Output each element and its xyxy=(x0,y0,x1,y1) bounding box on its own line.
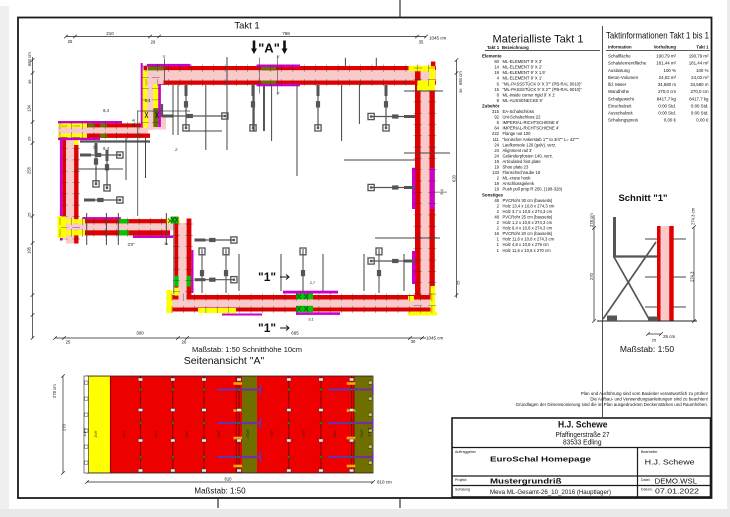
svg-text:190,79 m²: 190,79 m² xyxy=(689,54,709,59)
svg-text:Datei:: Datei: xyxy=(641,478,650,482)
svg-text:0:00 Std.: 0:00 Std. xyxy=(658,103,676,108)
svg-text:Datum:: Datum: xyxy=(641,488,653,492)
svg-text:270: 270 xyxy=(62,423,67,431)
svg-text:IMPERIAL-RICHTSCHIENE 4': IMPERIAL-RICHTSCHIENE 4' xyxy=(503,126,560,131)
svg-text:255: 255 xyxy=(27,166,32,174)
svg-text:83533 Edling: 83533 Edling xyxy=(563,438,602,447)
svg-text:Takt 1: Takt 1 xyxy=(696,44,709,49)
svg-text:620: 620 xyxy=(452,174,457,182)
svg-text:19: 19 xyxy=(494,165,499,170)
svg-text:Bezeichnung: Bezeichnung xyxy=(502,45,529,50)
svg-text:H.J. Schewe: H.J. Schewe xyxy=(645,460,695,467)
svg-text:2'x9': 2'x9' xyxy=(94,430,98,437)
svg-text:ML-crane hook: ML-crane hook xyxy=(503,176,532,181)
svg-text:Geländerpfosten 140, verz.: Geländerpfosten 140, verz. xyxy=(503,153,554,158)
svg-text:11,6: 11,6 xyxy=(131,118,136,127)
svg-text:Beton-Volumen: Beton-Volumen xyxy=(608,75,639,80)
svg-text:Vorhaltung: Vorhaltung xyxy=(654,44,677,49)
svg-text:"konischer Ankerstab 1"" to 3/: "konischer Ankerstab 1"" to 3/4"" L= 42"… xyxy=(503,137,580,142)
svg-text:684 cm: 684 cm xyxy=(27,52,32,66)
svg-text:Anschlussgelenk: Anschlussgelenk xyxy=(503,181,535,186)
svg-text:19: 19 xyxy=(494,70,499,75)
svg-text:222: 222 xyxy=(492,131,500,136)
svg-text:1x: 1x xyxy=(164,242,168,246)
svg-text:ML-ELEMENT 9' X 3': ML-ELEMENT 9' X 3' xyxy=(503,59,543,64)
svg-text:768: 768 xyxy=(282,31,290,36)
svg-text:PVCRohr 30 cm (bauseits): PVCRohr 30 cm (bauseits) xyxy=(503,198,553,203)
svg-text:3'3": 3'3" xyxy=(128,242,135,247)
svg-text:Elemente: Elemente xyxy=(482,54,502,59)
svg-text:Meva ML-Gesamt-26_10_2016 (Hau: Meva ML-Gesamt-26_10_2016 (Hauptlager) xyxy=(490,489,611,496)
svg-text:Bearbeiter: Bearbeiter xyxy=(641,450,658,454)
svg-text:26: 26 xyxy=(182,340,187,345)
svg-text:3': 3' xyxy=(277,54,280,59)
svg-text:A.E 9': A.E 9' xyxy=(83,427,87,436)
svg-text:24,02 m³: 24,02 m³ xyxy=(691,75,709,80)
svg-text:3'x9': 3'x9' xyxy=(185,430,189,437)
svg-text:Articulated foot plate: Articulated foot plate xyxy=(503,159,542,164)
svg-text:1'5'x9': 1'5'x9' xyxy=(360,429,364,439)
svg-text:8417,7 kg: 8417,7 kg xyxy=(689,96,709,101)
svg-text:Plan und Ausführung sind vom B: Plan und Ausführung sind vom Bauleiter v… xyxy=(581,391,708,396)
svg-text:30: 30 xyxy=(411,339,416,344)
svg-text:Holz 1,2 x 10,8 x 274,3 cm: Holz 1,2 x 10,8 x 274,3 cm xyxy=(503,220,553,225)
svg-text:Schalungspreis: Schalungspreis xyxy=(608,118,639,123)
svg-text:H.J. Schewe: H.J. Schewe xyxy=(558,420,608,431)
svg-text:Taktinformationen Takt 1 bis: Taktinformationen Takt 1 bis 1 xyxy=(606,31,709,41)
svg-text:"ML-PASSSTÜCK 9' X 3"" (PB-RA: "ML-PASSSTÜCK 9' X 3"" (PB-RAL 9010)" xyxy=(503,81,583,86)
svg-text:24: 24 xyxy=(494,153,499,158)
svg-text:Zubehör: Zubehör xyxy=(482,103,500,108)
svg-text:35: 35 xyxy=(419,40,424,45)
svg-text:Mustergrundriß: Mustergrundriß xyxy=(490,478,562,485)
svg-text:19: 19 xyxy=(494,181,499,186)
svg-text:6,4: 6,4 xyxy=(145,98,151,103)
svg-text:Holz 13,4 x 10,8 x 274,3 cm: Holz 13,4 x 10,8 x 274,3 cm xyxy=(503,203,555,208)
svg-text:Alignment rail 3': Alignment rail 3' xyxy=(503,148,533,153)
svg-text:Die Aufbau- und Verwendungsanl: Die Aufbau- und Verwendungsanleitungen s… xyxy=(590,397,708,402)
svg-text:48: 48 xyxy=(494,198,499,203)
svg-text:5,4: 5,4 xyxy=(439,188,444,194)
svg-text:1'5'x9': 1'5'x9' xyxy=(246,429,250,439)
svg-text:ML-ELEMENT 9' X 1.5': ML-ELEMENT 9' X 1.5' xyxy=(503,70,546,75)
svg-text:Maßstab: 1:50 Schnitthöhe 10: Maßstab: 1:50 Schnitthöhe 10cm xyxy=(192,345,302,354)
svg-text:270: 270 xyxy=(589,272,594,280)
svg-text:2': 2' xyxy=(175,147,178,152)
svg-text:60: 60 xyxy=(494,59,499,64)
svg-text:2,7: 2,7 xyxy=(310,281,315,285)
svg-text:Shoe plate 23: Shoe plate 23 xyxy=(503,165,530,170)
svg-text:181,44 m²: 181,44 m² xyxy=(689,61,709,66)
svg-text:Flanschschraube 18: Flanschschraube 18 xyxy=(503,170,541,175)
svg-text:"1": "1" xyxy=(258,270,276,284)
svg-text:Schalelementfläche: Schalelementfläche xyxy=(608,61,647,66)
svg-text:19: 19 xyxy=(494,187,499,192)
svg-text:Seitenansicht "A": Seitenansicht "A" xyxy=(184,355,265,367)
svg-text:3'x9': 3'x9' xyxy=(122,430,126,437)
svg-text:300: 300 xyxy=(136,331,144,336)
svg-text:190,79 m²: 190,79 m² xyxy=(656,54,676,59)
svg-text:Schalfläche: Schalfläche xyxy=(608,54,631,59)
svg-text:IMPERIAL-RICHTSCHIENE 6': IMPERIAL-RICHTSCHIENE 6' xyxy=(503,120,560,125)
svg-text:8417,7 kg: 8417,7 kg xyxy=(657,96,677,101)
svg-text:ML-AUSSENECKE 9': ML-AUSSENECKE 9' xyxy=(503,98,543,103)
svg-text:Maßstab: 1:50: Maßstab: 1:50 xyxy=(620,344,675,354)
svg-text:810: 810 xyxy=(225,477,233,482)
svg-text:07.01.2022: 07.01.2022 xyxy=(655,489,699,496)
svg-text:Projekt:: Projekt: xyxy=(455,478,467,482)
svg-text:EA-Schalschloss: EA-Schalschloss xyxy=(503,109,534,114)
svg-text:29: 29 xyxy=(27,136,32,141)
svg-text:278 cm: 278 cm xyxy=(589,213,594,227)
svg-text:ML-ELEMENT 9' X 1': ML-ELEMENT 9' X 1' xyxy=(503,76,543,81)
svg-text:3'x9': 3'x9' xyxy=(333,430,337,437)
svg-text:100 %: 100 % xyxy=(664,68,677,73)
svg-text:Materialliste Takt 1: Materialliste Takt 1 xyxy=(493,34,584,46)
svg-text:"1": "1" xyxy=(258,321,276,335)
svg-text:25: 25 xyxy=(652,338,657,343)
svg-text:210: 210 xyxy=(106,31,114,36)
svg-text:Holz 11,6 x 10,8 x 270 cm: Holz 11,6 x 10,8 x 270 cm xyxy=(503,248,552,253)
svg-text:Maßstab: 1:50: Maßstab: 1:50 xyxy=(194,487,246,496)
svg-text:Schalung: Schalung xyxy=(455,488,470,492)
svg-text:274,3: 274,3 xyxy=(690,271,695,282)
svg-text:Takt 1: Takt 1 xyxy=(487,45,500,50)
svg-text:24,02 m³: 24,02 m³ xyxy=(659,75,677,80)
svg-text:48: 48 xyxy=(494,214,499,219)
svg-text:25: 25 xyxy=(66,340,71,345)
svg-text:195: 195 xyxy=(27,246,32,254)
svg-text:Ausschalzeit: Ausschalzeit xyxy=(608,111,633,116)
svg-text:0:00 Std.: 0:00 Std. xyxy=(691,103,709,108)
svg-text:684 cm: 684 cm xyxy=(458,71,463,85)
svg-text:Holz 4,8 x 10,8 x 279 cm: Holz 4,8 x 10,8 x 279 cm xyxy=(503,242,550,247)
svg-text:Information: Information xyxy=(608,44,632,49)
svg-text:ML-inside corner rigid 9' X 1': ML-inside corner rigid 9' X 1' xyxy=(503,92,556,97)
svg-text:"ML-PASSSTÜCK 9' X 2"" (PB-RA: "ML-PASSSTÜCK 9' X 2"" (PB-RAL 9010)" xyxy=(503,87,583,92)
svg-text:3,1: 3,1 xyxy=(308,318,313,322)
svg-text:134: 134 xyxy=(27,104,32,112)
svg-text:315: 315 xyxy=(492,109,500,114)
svg-text:Auftraggeber: Auftraggeber xyxy=(455,450,477,454)
svg-text:PVCRohr 20 cm (bauseits): PVCRohr 20 cm (bauseits) xyxy=(503,231,553,236)
svg-text:Sonstiges: Sonstiges xyxy=(482,192,504,197)
svg-text:ML-ELEMENT 9' X 2': ML-ELEMENT 9' X 2' xyxy=(503,65,543,70)
svg-text:A.E 9': A.E 9' xyxy=(368,427,372,436)
svg-text:Holz 11,6 x 10,8 x 274,3 cm: Holz 11,6 x 10,8 x 274,3 cm xyxy=(503,237,555,242)
svg-text:25: 25 xyxy=(27,212,32,217)
svg-text:PVCRohr 25 cm (bauseits): PVCRohr 25 cm (bauseits) xyxy=(503,214,553,219)
svg-text:100 %: 100 % xyxy=(696,68,709,73)
svg-text:Grundlagen der Dimensionierung: Grundlagen der Dimensionierung sind die … xyxy=(516,402,708,407)
svg-text:36: 36 xyxy=(458,88,463,93)
svg-text:Uni-Schalschloss 22: Uni-Schalschloss 22 xyxy=(503,115,542,120)
svg-text:274,3 cm: 274,3 cm xyxy=(691,207,696,225)
svg-text:25 cm: 25 cm xyxy=(663,334,676,339)
svg-text:665: 665 xyxy=(291,331,299,336)
svg-text:Flange nut 100: Flange nut 100 xyxy=(503,131,532,136)
svg-text:Takt 1: Takt 1 xyxy=(234,21,259,32)
svg-text:3'x9': 3'x9' xyxy=(270,430,274,437)
svg-text:3'x9': 3'x9' xyxy=(302,430,306,437)
svg-text:Holz 3,7 x 10,8 x 274,3 cm: Holz 3,7 x 10,8 x 274,3 cm xyxy=(503,209,553,214)
svg-text:Wandhöhe: Wandhöhe xyxy=(608,89,630,94)
svg-text:25: 25 xyxy=(68,39,73,44)
svg-text:1045 cm: 1045 cm xyxy=(426,336,444,341)
svg-text:278 cm: 278 cm xyxy=(52,384,57,398)
svg-text:DEMO.WSL: DEMO.WSL xyxy=(655,478,698,485)
svg-text:29: 29 xyxy=(151,40,156,45)
svg-text:92: 92 xyxy=(494,115,499,120)
svg-text:0,00 €: 0,00 € xyxy=(664,118,677,123)
svg-text:34,580 m: 34,580 m xyxy=(658,82,677,87)
svg-text:25: 25 xyxy=(456,280,461,285)
svg-text:Holz 6,4 x 10,8 x 274,3 cm: Holz 6,4 x 10,8 x 274,3 cm xyxy=(503,226,553,231)
svg-text:3': 3' xyxy=(163,54,166,59)
svg-text:14: 14 xyxy=(494,65,499,70)
svg-text:181,44 m²: 181,44 m² xyxy=(656,61,676,66)
svg-text:Einschalzeit: Einschalzeit xyxy=(608,103,632,108)
svg-text:111: 111 xyxy=(493,137,500,142)
svg-text:Schalgewicht: Schalgewicht xyxy=(608,96,635,101)
svg-text:Laufkonsole 126 (galv), verz.: Laufkonsole 126 (galv), verz. xyxy=(503,142,557,147)
svg-text:16: 16 xyxy=(494,231,499,236)
svg-text:EuroSchal Homepage: EuroSchal Homepage xyxy=(490,457,591,464)
svg-text:0,00 €: 0,00 € xyxy=(696,118,709,123)
svg-text:0:00 Std.: 0:00 Std. xyxy=(691,111,709,116)
svg-text:2': 2' xyxy=(93,145,96,150)
svg-text:0:00 Std.: 0:00 Std. xyxy=(658,111,676,116)
svg-text:lfd. Meter: lfd. Meter xyxy=(608,82,627,87)
svg-text:3': 3' xyxy=(277,91,280,96)
svg-text:Schnitt "1": Schnitt "1" xyxy=(618,193,667,204)
svg-text:133: 133 xyxy=(492,170,500,175)
svg-text:36: 36 xyxy=(27,79,32,84)
svg-text:270,0 cm: 270,0 cm xyxy=(658,89,676,94)
svg-text:Auslastung: Auslastung xyxy=(608,68,630,73)
svg-text:24: 24 xyxy=(494,142,499,147)
svg-text:24: 24 xyxy=(494,148,499,153)
svg-text:810 cm: 810 cm xyxy=(377,480,392,485)
svg-text:6,4: 6,4 xyxy=(103,146,109,151)
svg-text:19: 19 xyxy=(494,159,499,164)
svg-text:64: 64 xyxy=(494,126,499,131)
svg-text:6,4: 6,4 xyxy=(103,108,109,113)
svg-text:Push pull prop R 250, (198-328: Push pull prop R 250, (198-328) xyxy=(503,187,563,192)
svg-text:15: 15 xyxy=(494,87,499,92)
svg-text:3'x9': 3'x9' xyxy=(217,430,221,437)
svg-text:270,0 cm: 270,0 cm xyxy=(690,89,708,94)
svg-text:3'x9': 3'x9' xyxy=(154,430,158,437)
svg-text:34,580 m: 34,580 m xyxy=(690,82,709,87)
svg-text:1045 cm: 1045 cm xyxy=(429,36,447,41)
